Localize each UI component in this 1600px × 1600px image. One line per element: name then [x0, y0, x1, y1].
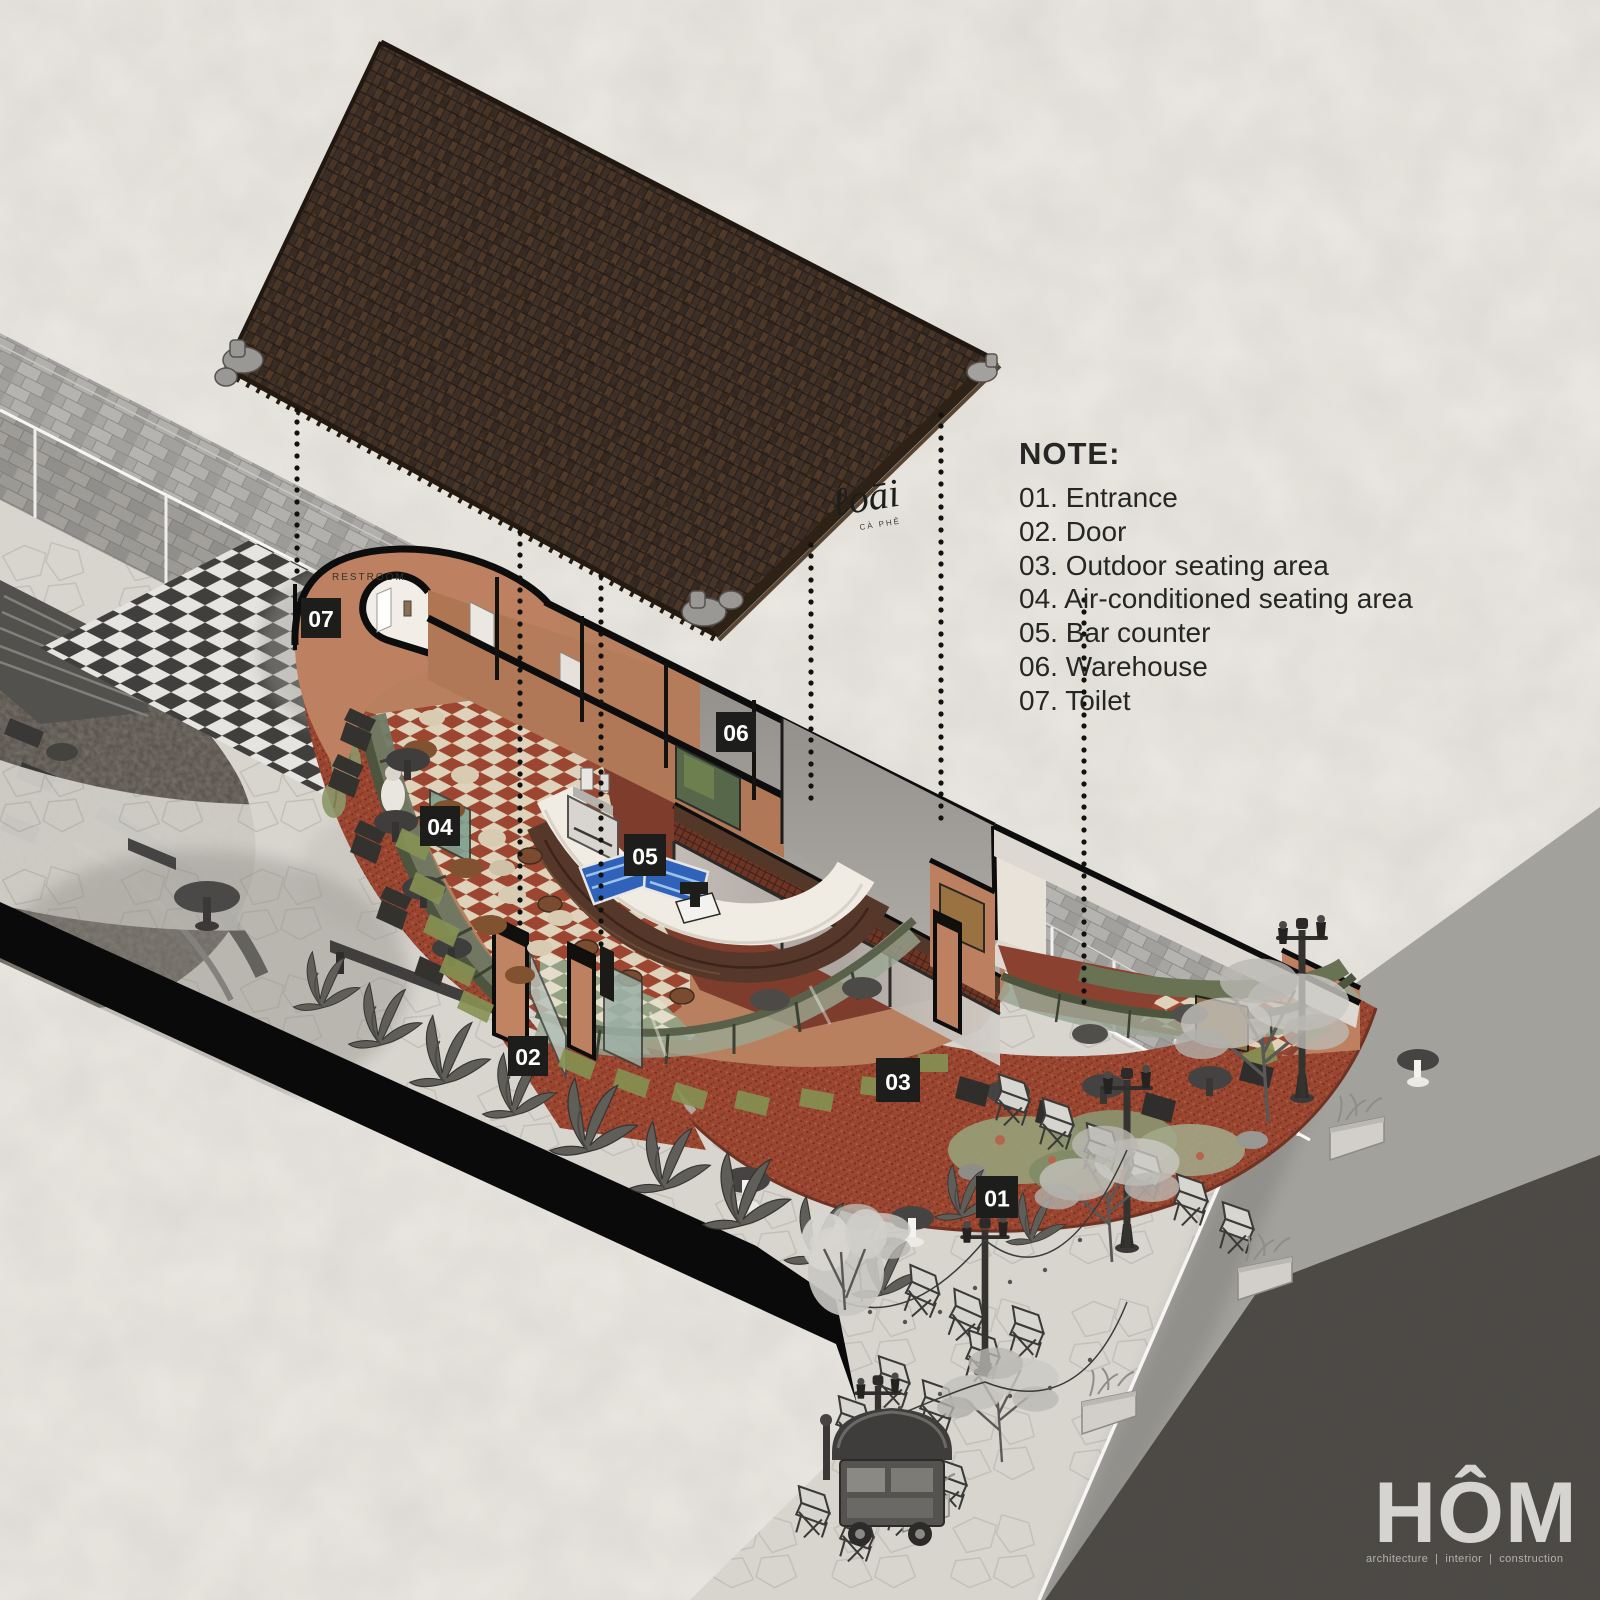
svg-text:architecture | interior |: architecture | interior | construction	[1366, 1553, 1563, 1565]
svg-text:03: 03	[885, 1069, 911, 1095]
svg-text:RESTROOM: RESTROOM	[332, 572, 406, 583]
svg-text:04. Air-conditioned seating ar: 04. Air-conditioned seating area	[1019, 583, 1413, 614]
svg-text:06: 06	[723, 720, 749, 746]
svg-text:06. Warehouse: 06. Warehouse	[1019, 651, 1208, 682]
svg-text:02: 02	[515, 1044, 541, 1070]
svg-text:02. Door: 02. Door	[1019, 516, 1126, 547]
svg-text:03. Outdoor seating area: 03. Outdoor seating area	[1019, 550, 1329, 581]
svg-text:07. Toilet: 07. Toilet	[1019, 685, 1131, 716]
svg-text:05. Bar counter: 05. Bar counter	[1019, 617, 1210, 648]
svg-text:NOTE:: NOTE:	[1019, 436, 1120, 471]
svg-text:07: 07	[308, 606, 334, 632]
svg-text:05: 05	[632, 844, 658, 870]
svg-text:01. Entrance: 01. Entrance	[1019, 482, 1178, 513]
svg-text:01: 01	[984, 1186, 1010, 1212]
svg-text:HÔM: HÔM	[1374, 1465, 1578, 1561]
svg-text:04: 04	[427, 814, 453, 840]
